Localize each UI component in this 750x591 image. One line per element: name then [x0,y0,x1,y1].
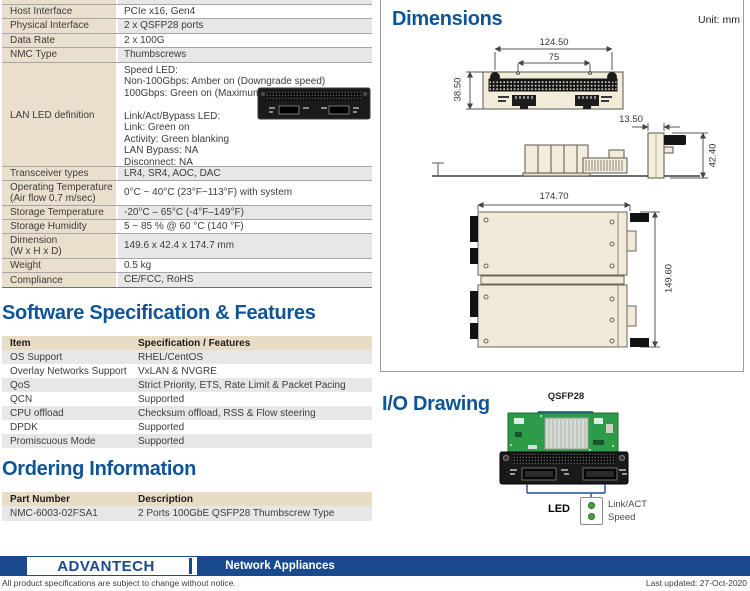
cell-spec: Checksum offload, RSS & Flow steering [132,408,372,419]
column-header: Item [2,338,132,349]
speed-led-icon [588,513,595,520]
spec-value: 149.6 x 42.4 x 174.7 mm [116,234,372,258]
dim-side-offset: 13.50 [606,114,656,125]
spec-label: Weight [2,259,116,272]
software-table-header: Item Specification / Features [2,336,372,350]
ordering-table-header: Part Number Description [2,492,372,506]
cell-item: QCN [2,394,132,405]
spec-value: 2 x QSFP28 ports [116,19,372,33]
cell-spec: VxLAN & NVGRE [132,366,372,377]
link-act-led-icon [588,502,595,509]
advantech-logo: ADVANTECH [27,557,197,575]
dim-front-width: 124.50 [528,37,580,48]
cell-spec: Supported [132,422,372,433]
software-section-title: Software Specification & Features [2,302,316,325]
column-header: Description [132,494,372,505]
table-row-qcn: QCN Supported [2,392,372,406]
table-row-dpdk: DPDK Supported [2,420,372,434]
advantech-logo-text: ADVANTECH [57,558,167,575]
led-legend-link-act: Link/ACT [608,499,647,510]
spec-label: Physical Interface [2,19,116,33]
spec-label: Storage Humidity [2,220,116,233]
table-row-promiscuous-mode: Promiscuous Mode Supported [2,434,372,448]
table-row-transceiver-types: Transceiver types LR4, SR4, AOC, DAC [2,167,372,181]
cell-description: 2 Ports 100GbE QSFP28 Thumbscrew Type [132,508,372,519]
spec-label: Host Interface [2,5,116,19]
cell-item: DPDK [2,422,132,433]
cell-item: OS Support [2,352,132,363]
ordering-table: Part Number Description NMC-6003-02FSA1 … [2,492,372,521]
dim-top-depth: 174.70 [528,191,580,202]
cell-part-number: NMC-6003-02FSA1 [2,508,132,519]
spec-label: Transceiver types [2,167,116,180]
spec-value: 0°C ~ 40°C (23°F~113°F) with system [116,181,372,205]
spec-value: 2 x 100G [116,34,372,48]
footer-note: All product specifications are subject t… [2,578,236,588]
ordering-section-title: Ordering Information [2,458,196,481]
cell-item: CPU offload [2,408,132,419]
led-label: LED [548,503,570,515]
led-legend-speed: Speed [608,512,635,523]
spec-label: NMC Type [2,48,116,62]
cell-item: Promiscuous Mode [2,436,132,447]
io-drawing [378,390,718,538]
spec-label: Compliance [2,273,116,287]
hardware-spec-table: Host Interface PCIe x16, Gen4 Physical I… [2,0,372,288]
cell-item: QoS [2,380,132,391]
table-row-part-number: NMC-6003-02FSA1 2 Ports 100GbE QSFP28 Th… [2,506,372,521]
spec-value: PCIe x16, Gen4 [116,5,372,19]
spec-value: 5 ~ 85 % @ 60 °C (140 °F) [116,220,372,233]
table-row-cpu-offload: CPU offload Checksum offload, RSS & Flow… [2,406,372,420]
spec-value [116,0,372,4]
cell-spec: RHEL/CentOS [132,352,372,363]
table-row-nmc-type: NMC Type Thumbscrews [2,48,372,63]
table-row-weight: Weight 0.5 kg [2,259,372,273]
spec-value: Thumbscrews [116,48,372,62]
spec-label: LAN LED definition [2,63,116,167]
cell-spec: Supported [132,436,372,447]
spec-label: Dimension (W x H x D) [2,234,116,258]
spec-value: -20°C – 65°C (-4°F–149°F) [116,206,372,219]
table-row-overlay-networks: Overlay Networks Support VxLAN & NVGRE [2,364,372,378]
table-row-storage-temperature: Storage Temperature -20°C – 65°C (-4°F–1… [2,206,372,220]
spec-label: Storage Temperature [2,206,116,219]
table-row-data-rate: Data Rate 2 x 100G [2,34,372,49]
dim-front-inner-width: 75 [528,52,580,63]
datasheet-page: Host Interface PCIe x16, Gen4 Physical I… [0,0,750,591]
spec-label [2,0,116,4]
column-header: Part Number [2,494,132,505]
column-header: Specification / Features [132,338,372,349]
lan-led-faceplate-image [257,85,371,122]
table-row-compliance: Compliance CE/FCC, RoHS [2,273,372,288]
footer-last-updated: Last updated: 27-Oct-2020 [646,578,747,588]
table-row-dimension: Dimension (W x H x D) 149.6 x 42.4 x 174… [2,234,372,259]
cell-spec: Supported [132,394,372,405]
table-row-operating-temperature: Operating Temperature (Air flow 0.7 m/se… [2,181,372,206]
spec-label: Data Rate [2,34,116,48]
cell-spec: Strict Priority, ETS, Rate Limit & Packe… [132,380,372,391]
logo-divider [189,558,192,574]
dim-side-height: 42.40 [708,138,719,174]
table-row-physical-interface: Physical Interface 2 x QSFP28 ports [2,19,372,34]
dim-front-height: 38.50 [453,72,464,108]
table-row-host-interface: Host Interface PCIe x16, Gen4 [2,5,372,20]
spec-value: 0.5 kg [116,259,372,272]
led-legend-box [580,497,603,525]
spec-value: CE/FCC, RoHS [116,273,372,287]
spec-label: Operating Temperature (Air flow 0.7 m/se… [2,181,116,205]
dim-top-width: 149.60 [664,261,675,297]
footer-category: Network Appliances [200,556,360,576]
table-row-storage-humidity: Storage Humidity 5 ~ 85 % @ 60 °C (140 °… [2,220,372,234]
table-row-qos: QoS Strict Priority, ETS, Rate Limit & P… [2,378,372,392]
software-table: Item Specification / Features OS Support… [2,336,372,448]
table-row-os-support: OS Support RHEL/CentOS [2,350,372,364]
spec-value: LR4, SR4, AOC, DAC [116,167,372,180]
cell-item: Overlay Networks Support [2,366,132,377]
